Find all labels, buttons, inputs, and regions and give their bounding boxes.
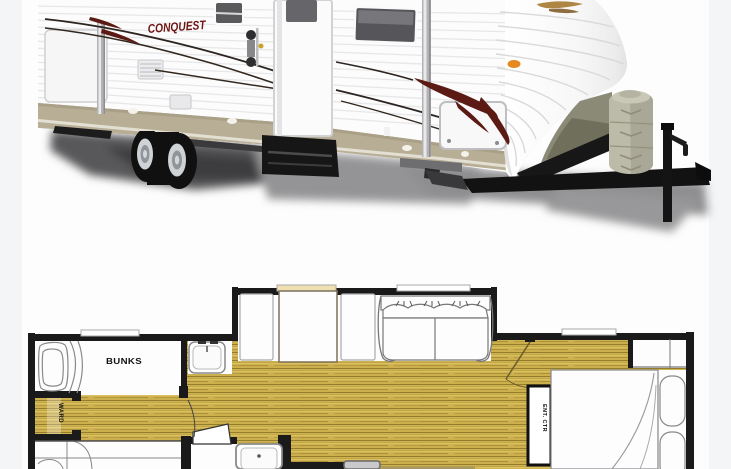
svg-text:ENT. CTR: ENT. CTR (541, 404, 547, 432)
svg-text:BUNKS: BUNKS (106, 357, 142, 366)
svg-text:WARD: WARD (57, 403, 63, 423)
